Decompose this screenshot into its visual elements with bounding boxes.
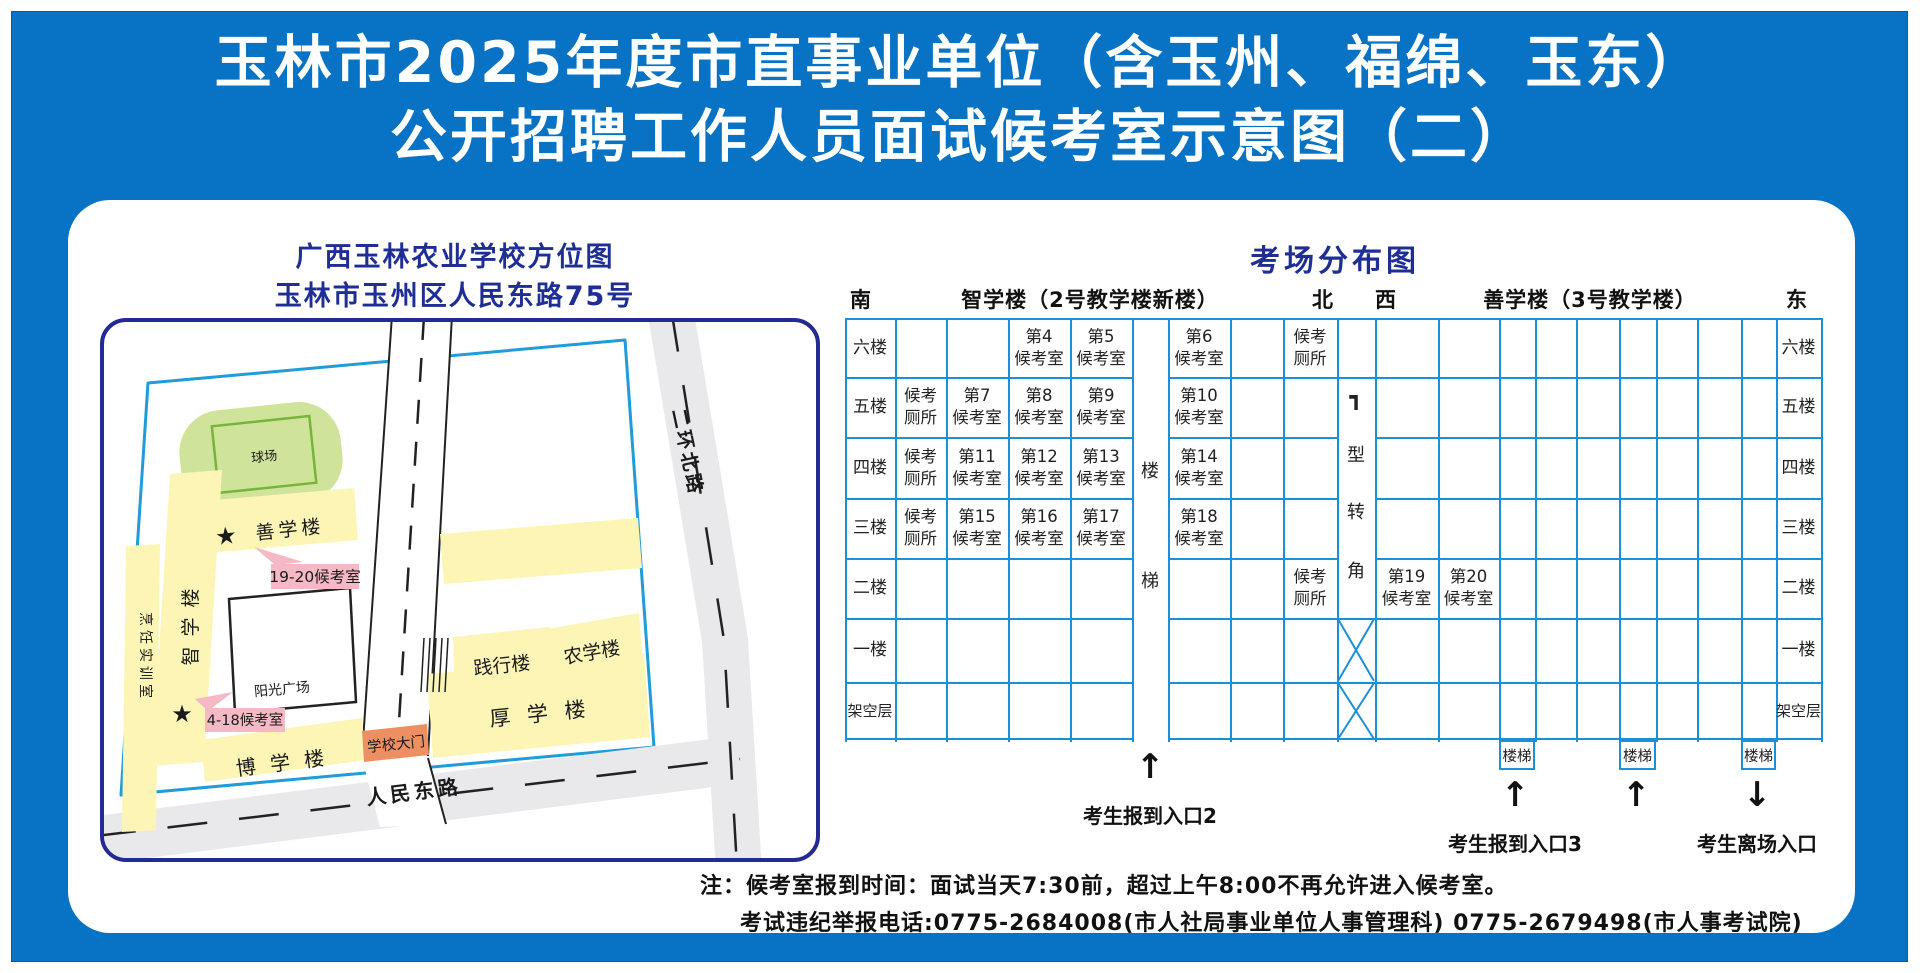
waiting-room-cell: 第16候考室: [1008, 498, 1070, 558]
exam-map-title: 考场分布图: [1100, 236, 1570, 280]
campus-map-heading-line1: 广西玉林农业学校方位图: [205, 238, 705, 277]
waiting-room-cell-text: 第10: [1180, 385, 1218, 407]
toilet-cell-text: 候考: [904, 385, 937, 407]
waiting-room-cell-text: 第17: [1082, 506, 1120, 528]
entrance3-label: 考生报到入口3: [1448, 828, 1582, 857]
grid-line: [1741, 318, 1743, 742]
entrance2-label: 考生报到入口2: [1083, 800, 1217, 829]
toilet-cell-text: 厕所: [904, 528, 937, 550]
waiting-room-cell: 第6候考室: [1168, 318, 1230, 377]
waiting-room-cell: 第9候考室: [1070, 377, 1132, 437]
star-icon: ★: [171, 700, 193, 728]
waiting-room-cell-text: 候考室: [952, 407, 1002, 429]
grid-line: [1375, 437, 1823, 439]
waiting-room-cell-text: 第6: [1186, 326, 1213, 348]
grid-line: [1821, 318, 1823, 742]
stair-box: 楼梯: [1619, 740, 1656, 770]
waiting-room-cell: 第7候考室: [946, 377, 1008, 437]
compass-west: 西: [1375, 284, 1397, 314]
stair-corridor-char: 楼: [1141, 457, 1159, 483]
grid-line: [1168, 377, 1823, 379]
note-line1: 注：候考室报到时间：面试当天7:30前，超过上午8:00不再允许进入候考室。: [700, 868, 1507, 900]
note-line2: 考试违纪举报电话:0775-2684008(市人社局事业单位人事管理科) 077…: [740, 905, 1803, 937]
floor-label-left: 五楼: [845, 377, 895, 437]
waiting-room-cell: 第10候考室: [1168, 377, 1230, 437]
floor-label-left-text: 架空层: [847, 700, 892, 722]
waiting-room-cell: 第8候考室: [1008, 377, 1070, 437]
waiting-room-cell-text: 第14: [1180, 446, 1218, 468]
floor-label-left-text: 一楼: [853, 639, 887, 661]
waiting-room-cell: 第15候考室: [946, 498, 1008, 558]
corner-column-char: 型: [1347, 441, 1365, 467]
waiting-room-cell-text: 候考室: [1014, 528, 1064, 550]
toilet-cell-text: 候考: [1294, 326, 1327, 348]
grid-line: [1168, 738, 1823, 740]
waiting-room-cell-text: 候考室: [952, 528, 1002, 550]
toilet-cell: 候考厕所: [895, 498, 946, 558]
waiting-room-cell: 第14候考室: [1168, 437, 1230, 498]
waiting-room-cell-text: 第15: [958, 506, 996, 528]
toilet-cell-text: 厕所: [904, 407, 937, 429]
waiting-room-cell-text: 候考室: [1174, 468, 1224, 490]
waiting-room-cell-text: 候考室: [952, 468, 1002, 490]
toilet-cell-text: 候考: [1294, 566, 1327, 588]
floor-label-right: 四楼: [1776, 437, 1821, 498]
floor-label-left: 四楼: [845, 437, 895, 498]
building-cooking-label: 烹饪实训室: [137, 612, 154, 702]
waiting-room-cell-text: 候考室: [1014, 407, 1064, 429]
waiting-room-cell-text: 候考室: [1444, 588, 1494, 610]
corner-column-char: 角: [1347, 557, 1365, 583]
page-title: 玉林市2025年度市直事业单位（含玉州、福绵、玉东） 公开招聘工作人员面试候考室…: [0, 26, 1920, 174]
waiting-room-cell-text: 候考室: [1382, 588, 1432, 610]
grid-line: [1375, 318, 1377, 742]
waiting-room-cell-text: 候考室: [1174, 407, 1224, 429]
grid-line: [1375, 498, 1823, 500]
grid-line: [1535, 318, 1537, 742]
waiting-room-cell-text: 第16: [1020, 506, 1058, 528]
waiting-room-cell-text: 候考室: [1174, 528, 1224, 550]
waiting-room-cell-text: 候考室: [1076, 348, 1126, 370]
floor-label-left-text: 二楼: [853, 577, 887, 599]
callout-19-20-pointer: [254, 547, 303, 565]
floor-label-left: 二楼: [845, 558, 895, 618]
floor-label-left-text: 五楼: [853, 396, 887, 418]
toilet-cell: 候考厕所: [1283, 558, 1337, 618]
waiting-room-cell-text: 第13: [1082, 446, 1120, 468]
stair-corridor-char: 梯: [1141, 567, 1159, 593]
stair-arrow-icon: ↑: [1622, 778, 1651, 812]
floor-label-left: 一楼: [845, 618, 895, 682]
campus-map-heading: 广西玉林农业学校方位图 玉林市玉州区人民东路75号: [205, 238, 705, 316]
floor-label-right: 架空层: [1776, 682, 1821, 740]
waiting-room-cell-text: 候考室: [1014, 468, 1064, 490]
toilet-cell: 候考厕所: [1283, 318, 1337, 377]
waiting-room-cell: 第5候考室: [1070, 318, 1132, 377]
campus-map-canvas: 球场阳光广场学校大门善学楼智学楼烹饪实训室博 学 楼厚 学 楼践行楼农学楼二环北…: [104, 322, 816, 858]
floor-label-right-text: 四楼: [1782, 457, 1816, 479]
waiting-room-cell-text: 候考室: [1076, 528, 1126, 550]
toilet-cell-text: 候考: [904, 506, 937, 528]
waiting-room-cell: 第20候考室: [1438, 558, 1499, 618]
building-unnamed: [440, 518, 642, 584]
floor-label-right: 一楼: [1776, 618, 1821, 682]
waiting-room-cell-text: 第20: [1450, 566, 1488, 588]
star-icon: ★: [214, 521, 238, 551]
grid-line: [1132, 318, 1134, 742]
grid-line: [1230, 318, 1232, 742]
waiting-room-cell-text: 第4: [1026, 326, 1053, 348]
waiting-room-cell: 第18候考室: [1168, 498, 1230, 558]
page-title-line2: 公开招聘工作人员面试候考室示意图（二）: [0, 100, 1920, 174]
waiting-room-cell-text: 候考室: [1174, 348, 1224, 370]
floor-label-right-text: 二楼: [1782, 577, 1816, 599]
building-zhixue-label: 智学楼: [180, 578, 202, 665]
waiting-room-cell-text: 候考室: [1076, 407, 1126, 429]
floor-label-right-text: 六楼: [1782, 337, 1816, 359]
toilet-cell: 候考厕所: [895, 437, 946, 498]
right-building-title: 善学楼（3号教学楼）: [1483, 284, 1697, 314]
floor-label-right: 二楼: [1776, 558, 1821, 618]
toilet-cell-text: 厕所: [1294, 348, 1327, 370]
waiting-room-cell: 第19候考室: [1375, 558, 1438, 618]
floor-label-right-text: 一楼: [1782, 639, 1816, 661]
waiting-room-cell-text: 候考室: [1076, 468, 1126, 490]
waiting-room-cell: 第17候考室: [1070, 498, 1132, 558]
waiting-room-cell-text: 第12: [1020, 446, 1058, 468]
floor-label-left-text: 四楼: [853, 457, 887, 479]
stair-box: 楼梯: [1499, 740, 1535, 770]
campus-map: 球场阳光广场学校大门善学楼智学楼烹饪实训室博 学 楼厚 学 楼践行楼农学楼二环北…: [100, 318, 820, 862]
grid-line: [1697, 318, 1699, 742]
entrance2-arrow-icon: ↑: [1136, 750, 1165, 784]
floor-label-right: 五楼: [1776, 377, 1821, 437]
corner-column-char: 转: [1347, 498, 1365, 524]
grid-line: [1576, 318, 1578, 742]
floor-label-left: 三楼: [845, 498, 895, 558]
x-mark-icon: [1337, 682, 1375, 740]
exit-label: 考生离场入口: [1697, 828, 1817, 857]
waiting-room-cell: 第13候考室: [1070, 437, 1132, 498]
grid-line: [1656, 318, 1658, 742]
waiting-room-cell: 第11候考室: [946, 437, 1008, 498]
exam-room-grid: 六楼六楼五楼五楼四楼四楼三楼三楼二楼二楼一楼一楼架空层架空层第4候考室第5候考室…: [845, 318, 1823, 740]
toilet-cell: 候考厕所: [895, 377, 946, 437]
waiting-room-cell-text: 第7: [964, 385, 991, 407]
floor-label-right-text: 架空层: [1776, 700, 1821, 722]
waiting-room-cell-text: 第5: [1088, 326, 1115, 348]
waiting-room-cell: 第4候考室: [1008, 318, 1070, 377]
crossed-cell: [1337, 682, 1375, 740]
left-building-title: 智学楼（2号教学楼新楼）: [961, 284, 1219, 314]
waiting-room-cell-text: 第9: [1088, 385, 1115, 407]
toilet-cell-text: 厕所: [904, 468, 937, 490]
waiting-room-cell-text: 第18: [1180, 506, 1218, 528]
grid-line: [1283, 318, 1285, 742]
entrance3-arrow-icon: ↑: [1501, 778, 1530, 812]
floor-label-left: 六楼: [845, 318, 895, 377]
floor-label-left-text: 三楼: [853, 517, 887, 539]
grid-line: [1619, 318, 1621, 742]
grid-line: [1438, 318, 1440, 742]
floor-label-left-text: 六楼: [853, 337, 887, 359]
floor-label-right-text: 五楼: [1782, 396, 1816, 418]
floor-label-right: 六楼: [1776, 318, 1821, 377]
compass-east: 东: [1786, 284, 1808, 314]
grid-line: [1499, 318, 1501, 742]
waiting-room-cell-text: 第8: [1026, 385, 1053, 407]
ball-field-label: 球场: [251, 449, 278, 467]
page-title-line1: 玉林市2025年度市直事业单位（含玉州、福绵、玉东）: [0, 26, 1920, 100]
compass-north: 北: [1312, 284, 1334, 314]
toilet-cell-text: 候考: [904, 446, 937, 468]
floor-label-right-text: 三楼: [1782, 517, 1816, 539]
crossed-cell: [1337, 618, 1375, 682]
waiting-room-cell-text: 第19: [1388, 566, 1426, 588]
stair-box: 楼梯: [1741, 740, 1776, 770]
waiting-room-cell-text: 候考室: [1014, 348, 1064, 370]
grid-line: [1168, 682, 1823, 684]
grid-line: [1168, 618, 1823, 620]
campus-map-heading-line2: 玉林市玉州区人民东路75号: [205, 277, 705, 316]
x-mark-icon: [1337, 618, 1375, 682]
compass-south: 南: [850, 284, 872, 314]
corner-column-char: ┓: [1349, 386, 1362, 411]
waiting-room-cell: 第12候考室: [1008, 437, 1070, 498]
waiting-room-cell-text: 第11: [958, 446, 996, 468]
callout-4-18-label: 4-18候考室: [207, 712, 283, 729]
exit-arrow-icon: ↓: [1743, 778, 1772, 812]
floor-label-right: 三楼: [1776, 498, 1821, 558]
callout-19-20-label: 19-20候考室: [269, 568, 361, 586]
floor-label-left: 架空层: [845, 682, 895, 740]
toilet-cell-text: 厕所: [1294, 588, 1327, 610]
